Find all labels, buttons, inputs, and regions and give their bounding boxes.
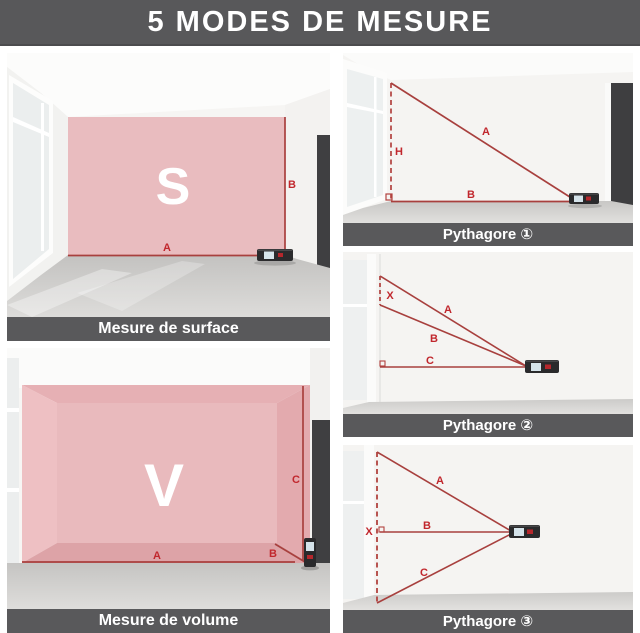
panel-volume: V A B C Mesure de volume — [7, 348, 330, 633]
ceiling — [7, 348, 330, 388]
label-b: B — [288, 179, 296, 191]
room-wall — [343, 252, 633, 414]
label-b: B — [423, 520, 431, 532]
label-a: A — [444, 304, 452, 316]
caption-pythagore-2: Pythagore ② — [343, 414, 633, 437]
label-x: X — [365, 526, 373, 538]
panel-pythagore-1: A B H Pythagore ① — [343, 53, 633, 246]
label-b: B — [430, 333, 438, 345]
header-banner: 5 MODES DE MESURE — [0, 0, 640, 46]
floor — [7, 563, 330, 609]
label-a: A — [163, 242, 171, 254]
label-b: B — [269, 548, 277, 560]
pythagore3-scene-graphic: X A B C — [343, 445, 633, 610]
doorway — [611, 83, 633, 205]
laser-meter-device-icon — [509, 525, 540, 538]
window-graphic — [343, 254, 380, 404]
caption-surface: Mesure de surface — [7, 317, 330, 341]
volume-scene-graphic: V A B C — [7, 348, 330, 609]
label-a: A — [482, 126, 490, 138]
doorway — [317, 135, 330, 273]
laser-meter-device-icon — [254, 249, 296, 266]
surface-scene-graphic: S A B — [7, 53, 330, 317]
label-x: X — [386, 290, 394, 302]
panel-pythagore-3: X A B C Pythagore ③ — [343, 445, 633, 633]
pythagore2-scene-graphic: X A B C — [343, 252, 633, 414]
window-graphic — [7, 358, 19, 583]
panel-pythagore-2: X A B C Pythagore ② — [343, 252, 633, 437]
room-wall — [343, 445, 633, 610]
surface-symbol: S — [156, 158, 191, 216]
window-graphic — [9, 75, 53, 287]
window-graphic — [343, 59, 387, 215]
pythagore1-scene-graphic: A B H — [343, 53, 633, 223]
product-infographic: 5 MODES DE MESURE S — [0, 0, 640, 633]
laser-meter-device-icon — [525, 360, 559, 373]
door-frame — [605, 83, 611, 205]
label-c: C — [426, 355, 434, 367]
label-a: A — [153, 550, 161, 562]
volume-symbol: V — [144, 452, 184, 519]
label-h: H — [395, 146, 403, 158]
label-c: C — [292, 474, 300, 486]
label-c: C — [420, 567, 428, 579]
caption-volume: Mesure de volume — [7, 609, 330, 633]
label-a: A — [436, 475, 444, 487]
page-title: 5 MODES DE MESURE — [148, 6, 493, 39]
caption-pythagore-1: Pythagore ① — [343, 223, 633, 246]
window-graphic — [343, 445, 374, 603]
laser-meter-device-icon — [568, 193, 602, 208]
caption-pythagore-3: Pythagore ③ — [343, 610, 633, 633]
panel-surface: S A B Mesure de surface — [7, 53, 330, 341]
label-b: B — [467, 189, 475, 201]
